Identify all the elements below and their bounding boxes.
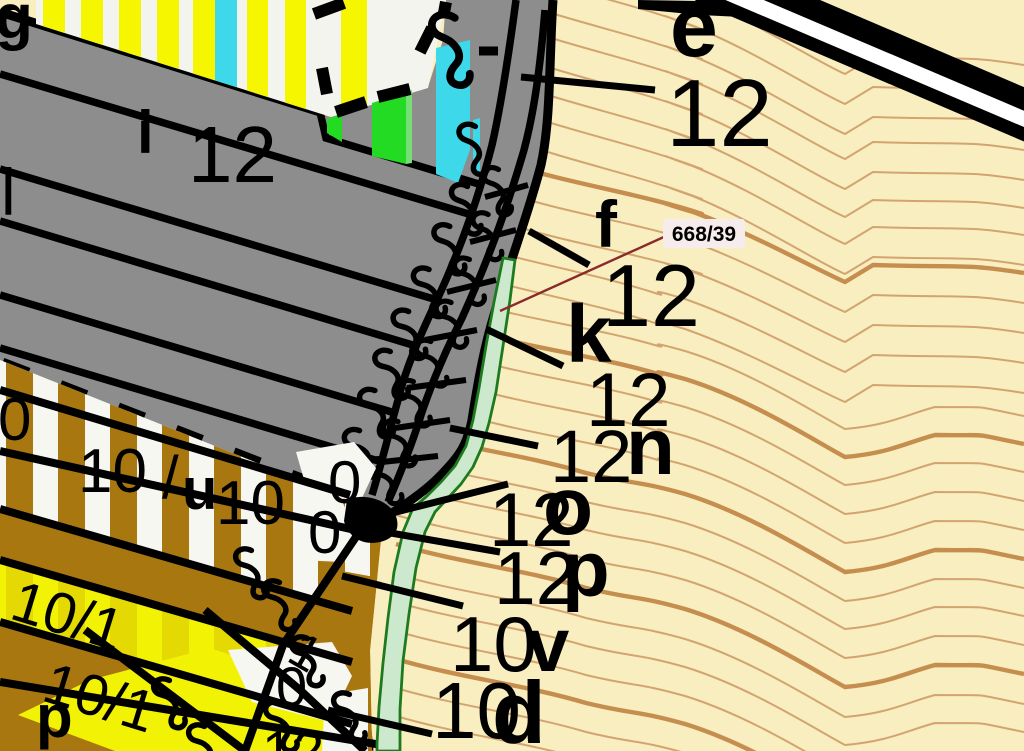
svg-text:668/39: 668/39 xyxy=(672,223,736,246)
svg-text:0: 0 xyxy=(0,386,31,453)
svg-text:i: i xyxy=(137,99,154,166)
svg-text:10: 10 xyxy=(78,437,147,506)
svg-text:/: / xyxy=(162,444,179,511)
svg-text:12: 12 xyxy=(262,719,324,751)
svg-text:0: 0 xyxy=(308,499,341,566)
svg-text:12: 12 xyxy=(188,110,277,199)
svg-text:d: d xyxy=(492,663,546,751)
svg-text:n: n xyxy=(626,402,675,491)
svg-text:p: p xyxy=(562,525,610,613)
svg-text:l: l xyxy=(1,155,16,229)
svg-text:u: u xyxy=(182,457,217,522)
svg-text:10: 10 xyxy=(216,469,285,538)
svg-text:g: g xyxy=(0,0,33,52)
svg-text:12: 12 xyxy=(666,60,773,167)
svg-text:12: 12 xyxy=(602,246,700,345)
